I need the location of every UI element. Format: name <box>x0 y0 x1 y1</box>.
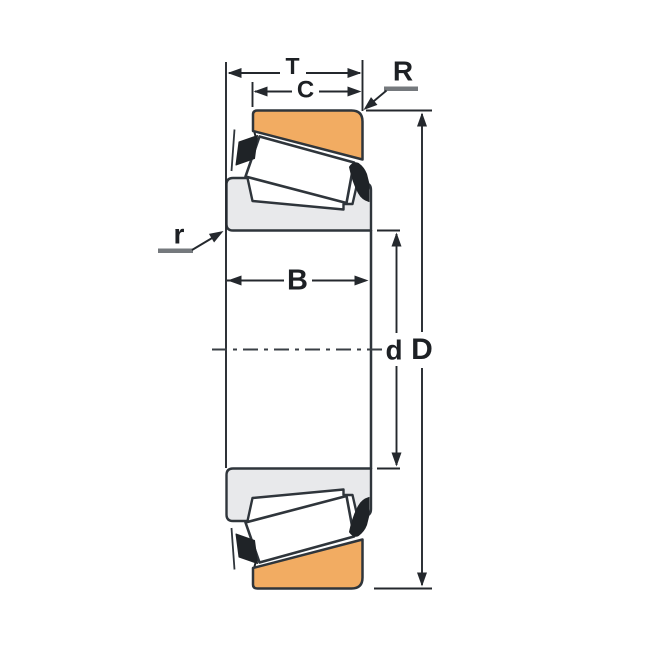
label-C: C <box>297 77 314 104</box>
label-d: d <box>385 335 402 366</box>
dim-C-arrow-left <box>254 87 268 97</box>
dimension-T: T <box>228 53 362 79</box>
label-D: D <box>411 333 433 366</box>
bearing-half-assembly <box>227 111 372 231</box>
label-R-underline <box>384 87 418 92</box>
dim-D-arrow-down <box>417 573 427 587</box>
callout-R: R <box>360 56 418 114</box>
leader-r-arrow <box>209 227 226 243</box>
dimension-C: C <box>254 77 362 104</box>
dimension-B: B <box>227 265 369 297</box>
dim-B-arrow-right <box>355 276 369 286</box>
bearing-diagram-svg: T C B d D R <box>0 0 671 672</box>
dim-T-arrow-right <box>348 68 362 78</box>
cage-rim-line <box>232 130 235 172</box>
bearing-dimension-drawing: T C B d D R <box>0 0 671 672</box>
callout-r: r <box>158 219 226 254</box>
dim-C-arrow-right <box>348 87 362 97</box>
dim-d-arrow-up <box>392 233 402 247</box>
dim-d-arrow-down <box>392 453 402 467</box>
label-T: T <box>285 53 299 79</box>
label-R: R <box>393 56 413 87</box>
label-r: r <box>174 219 185 250</box>
label-B: B <box>287 265 308 297</box>
bottom-assembly-mirror <box>227 469 372 589</box>
dim-D-arrow-up <box>417 113 427 127</box>
label-r-underline <box>158 249 193 254</box>
dim-T-arrow-left <box>228 68 242 78</box>
dim-B-arrow-left <box>228 276 242 286</box>
